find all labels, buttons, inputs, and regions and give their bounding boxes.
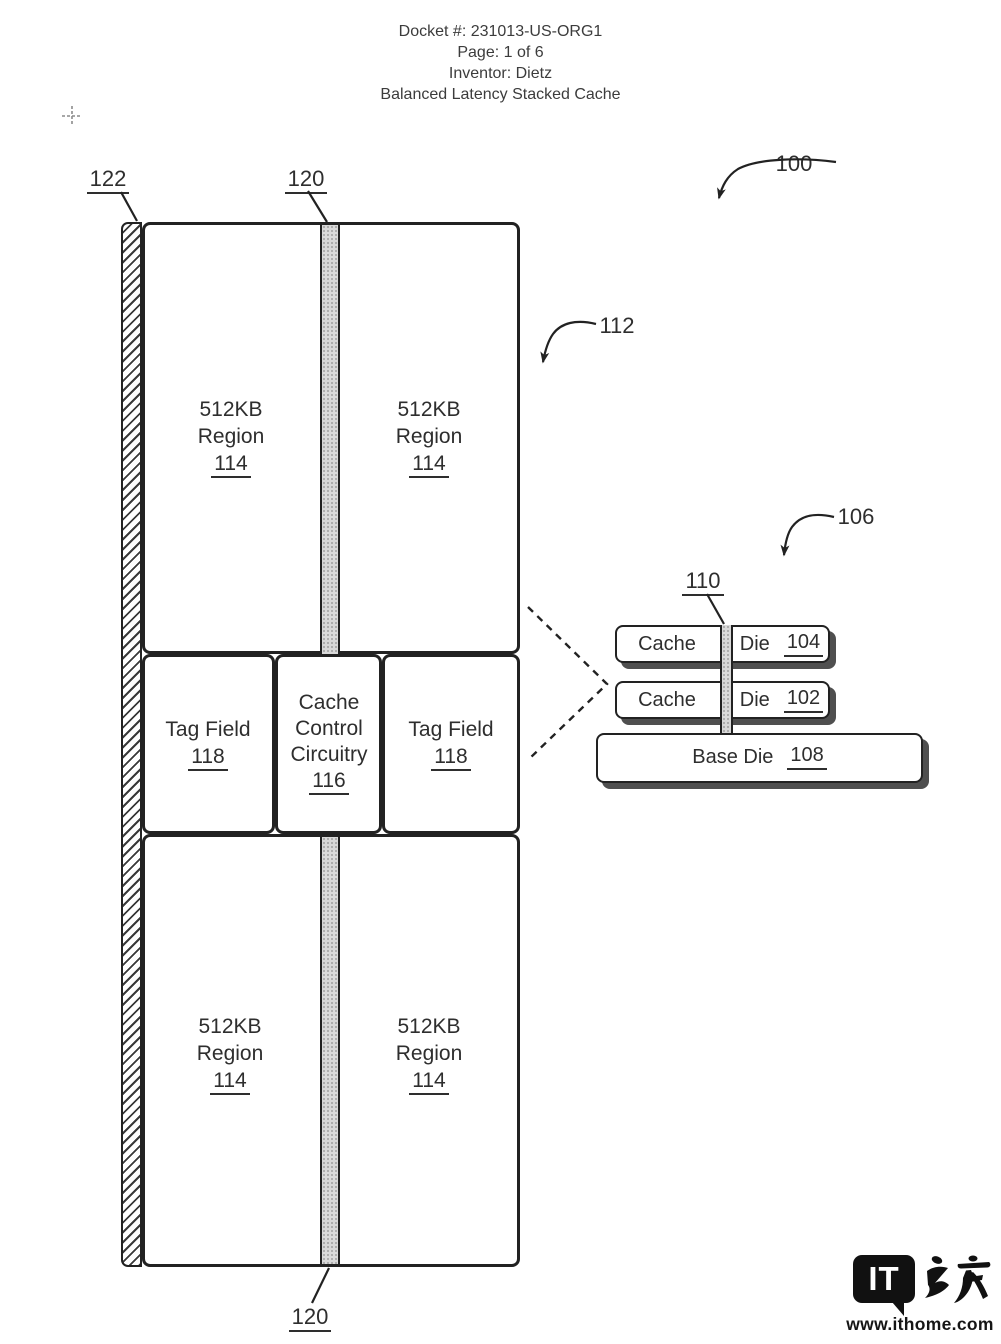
ithome-cjk-icon [924,1254,992,1306]
ref-label-100: 100 [759,151,829,177]
watermark-url: www.ithome.com [846,1314,994,1335]
leader-line-120-bottom [312,1268,329,1303]
inventor-line: Inventor: Dietz [0,63,1001,84]
ref-114: 114 [409,1069,448,1095]
leader-line-122 [121,192,137,221]
ref-label-120-bottom: 120 [275,1304,345,1330]
ithome-watermark: IT www.ithome.com [846,1247,998,1342]
ref-label-112: 112 [582,313,652,339]
ref-label-120-top: 120 [271,166,341,192]
tsv-column-110 [720,625,733,733]
docket-number: Docket #: 231013-US-ORG1 [0,21,1001,42]
registration-mark-icon [62,106,82,126]
ref-label-110: 110 [668,568,738,594]
ref-label-106: 106 [821,504,891,530]
ref-104: 104 [784,631,823,657]
page-number: Page: 1 of 6 [0,42,1001,63]
vertical-bus-bottom-120 [320,837,340,1264]
ref-114: 114 [409,452,448,478]
region-label-bottom-left: 512KB Region 114 [145,1013,315,1094]
expansion-chevron-icon [528,607,607,759]
ref-label-122: 122 [73,166,143,192]
document-header: Docket #: 231013-US-ORG1 Page: 1 of 6 In… [0,21,1001,105]
ref-114: 114 [211,452,250,478]
ref-102: 102 [784,687,823,713]
logo-it-text: IT [868,1260,899,1298]
patent-drawing-page: Docket #: 231013-US-ORG1 Page: 1 of 6 In… [0,0,1001,1344]
base-die-label: Base Die 108 [598,735,921,779]
leader-line-120-top [308,191,327,222]
invention-title: Balanced Latency Stacked Cache [0,84,1001,105]
cache-die-102-die-label: Die 102 [733,683,830,717]
region-label-top-left: 512KB Region 114 [146,396,316,477]
ref-116: 116 [309,769,348,795]
ref-118: 118 [188,745,227,771]
cache-die-104-cache-label: Cache [617,627,717,661]
region-label-bottom-right: 512KB Region 114 [344,1013,514,1094]
ref-108: 108 [787,744,826,770]
ithome-logo-bubble: IT [853,1255,915,1303]
leader-line-110 [707,594,724,624]
ref-118: 118 [431,745,470,771]
vertical-bus-top-120 [320,225,340,654]
cache-die-104-die-label: Die 104 [733,627,830,661]
cache-control-label: Cache Control Circuitry 116 [244,690,414,794]
ref-114: 114 [210,1069,249,1095]
cache-die-102-cache-label: Cache [617,683,717,717]
region-label-top-right: 512KB Region 114 [344,396,514,477]
